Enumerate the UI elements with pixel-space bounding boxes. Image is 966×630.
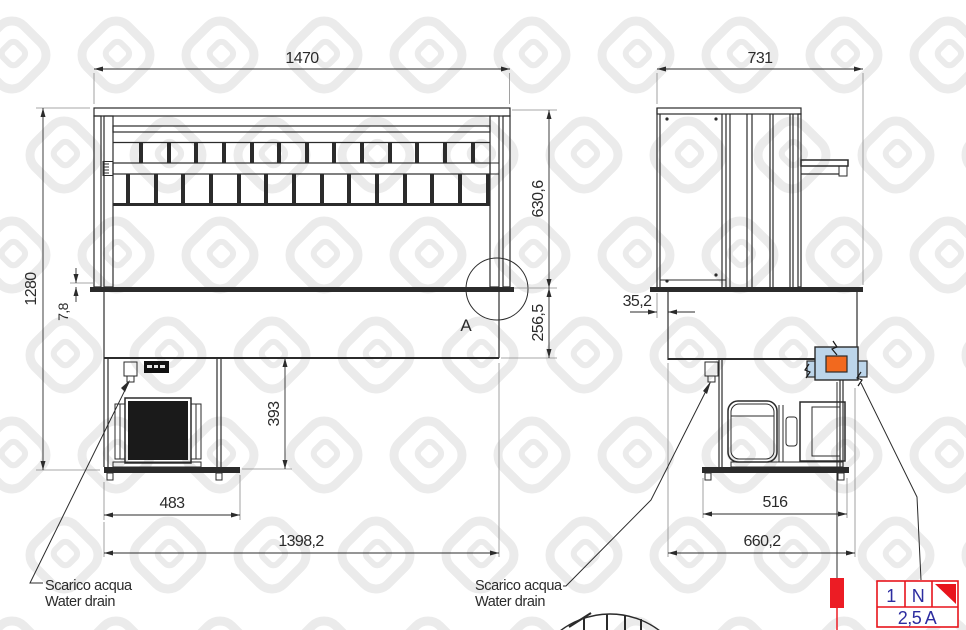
- drain-label-front-line1: Scarico acqua: [45, 578, 133, 594]
- dim-base-width: 483: [160, 495, 186, 512]
- watermark-tile: [0, 614, 53, 630]
- dim-counter-to-bottom: 256,5: [530, 304, 547, 342]
- watermark-tile: [491, 14, 573, 96]
- dim-total-height: 1280: [23, 272, 40, 306]
- watermark-tile: [23, 314, 105, 396]
- watermark-tile: [647, 514, 729, 596]
- side-left-foot: [705, 473, 711, 480]
- side-base-plate: [702, 467, 849, 473]
- watermark-tile: [959, 314, 966, 396]
- watermark-tile: [907, 14, 966, 96]
- watermark-tile: [959, 114, 966, 196]
- neutral-label: N: [912, 586, 925, 606]
- watermark-tile: [855, 314, 937, 396]
- watermark-tile: [959, 514, 966, 596]
- watermark-tile: [283, 614, 365, 630]
- connection-box-terminal: [826, 356, 847, 372]
- watermark-tile: [231, 514, 313, 596]
- watermark-tile: [907, 214, 966, 296]
- watermark-tile: [647, 314, 729, 396]
- electrical-leader-line: [861, 383, 921, 580]
- watermark-tile: [803, 14, 885, 96]
- watermark-tile: [699, 614, 781, 630]
- front-left-foot: [107, 473, 113, 480]
- watermark-tile: [803, 214, 885, 296]
- dim-front-width: 1470: [285, 50, 319, 67]
- dim-base-span: 660,2: [743, 533, 781, 550]
- front-rail-row1-bars: [139, 143, 475, 164]
- dim-drain-span: 1398,2: [278, 533, 324, 550]
- watermark-tile: [75, 214, 157, 296]
- watermark-tile: [491, 414, 573, 496]
- watermark-tile: [0, 514, 1, 596]
- front-glass-rail: [113, 126, 490, 132]
- watermark-tile: [0, 14, 53, 96]
- detail-a-label: A: [460, 316, 472, 335]
- fuse-rating-label: 2,5 A: [898, 608, 937, 628]
- watermark-tile: [231, 314, 313, 396]
- watermark-tile: [543, 114, 625, 196]
- watermark-tile: [595, 214, 677, 296]
- dim-side-width: 731: [748, 50, 774, 67]
- drain-label-side-line1: Scarico acqua: [475, 578, 563, 594]
- front-rail-bottom: [113, 203, 490, 206]
- watermark-tile: [179, 214, 261, 296]
- phase-label: 1: [886, 586, 896, 606]
- watermark-tile: [179, 14, 261, 96]
- watermark-tile: [491, 614, 573, 630]
- watermark-tile: [335, 314, 417, 396]
- dim-upper-height: 630,6: [530, 180, 547, 218]
- dim-unit-width: 516: [763, 494, 789, 511]
- dim-counter-offset: 35,2: [623, 293, 652, 310]
- watermark-tile: [335, 514, 417, 596]
- watermark-tile: [127, 514, 209, 596]
- front-counter-top: [90, 287, 514, 292]
- watermark-tile: [23, 114, 105, 196]
- watermark-tile: [699, 414, 781, 496]
- watermark-tile: [751, 514, 833, 596]
- rating-plate-front: [144, 361, 169, 373]
- watermark-tile: [543, 314, 625, 396]
- watermark-tile: [0, 414, 53, 496]
- side-counter-top: [650, 287, 863, 292]
- watermark-tile: [699, 214, 781, 296]
- technical-drawing: A: [0, 0, 966, 630]
- watermark-tile: [855, 114, 937, 196]
- watermark-tile: [179, 614, 261, 630]
- side-top-band: [657, 108, 801, 114]
- watermark-tile: [75, 614, 157, 630]
- front-base-plate: [104, 467, 240, 473]
- watermark-tile: [751, 114, 833, 196]
- drain-label-side-line2: Water drain: [475, 594, 545, 610]
- dim-top-lip: 7,8: [55, 302, 71, 320]
- watermark-tile: [0, 114, 1, 196]
- front-top-band: [94, 108, 510, 116]
- watermark-tile: [803, 414, 885, 496]
- watermark-tile: [907, 414, 966, 496]
- watermark-pattern: [0, 0, 966, 630]
- watermark-tile: [647, 114, 729, 196]
- drawing-canvas: A: [0, 0, 966, 630]
- detail-view-a-partial: [528, 613, 692, 630]
- watermark-tile: [283, 414, 365, 496]
- watermark-tile: [595, 14, 677, 96]
- watermark-tile: [387, 414, 469, 496]
- dim-compartment-height: 393: [266, 401, 283, 427]
- front-right-foot: [216, 473, 222, 480]
- watermark-tile: [0, 314, 1, 396]
- watermark-tile: [439, 314, 521, 396]
- watermark-tile: [387, 14, 469, 96]
- watermark-tile: [127, 314, 209, 396]
- watermark-tile: [595, 414, 677, 496]
- drain-label-front-line2: Water drain: [45, 594, 115, 610]
- watermark-tile: [75, 14, 157, 96]
- watermark-tile: [387, 214, 469, 296]
- watermark-tile: [803, 614, 885, 630]
- side-right-foot: [838, 473, 844, 480]
- drain-label-side: Scarico acqua Water drain: [475, 381, 711, 610]
- watermark-tile: [283, 214, 365, 296]
- watermark-tile: [387, 614, 469, 630]
